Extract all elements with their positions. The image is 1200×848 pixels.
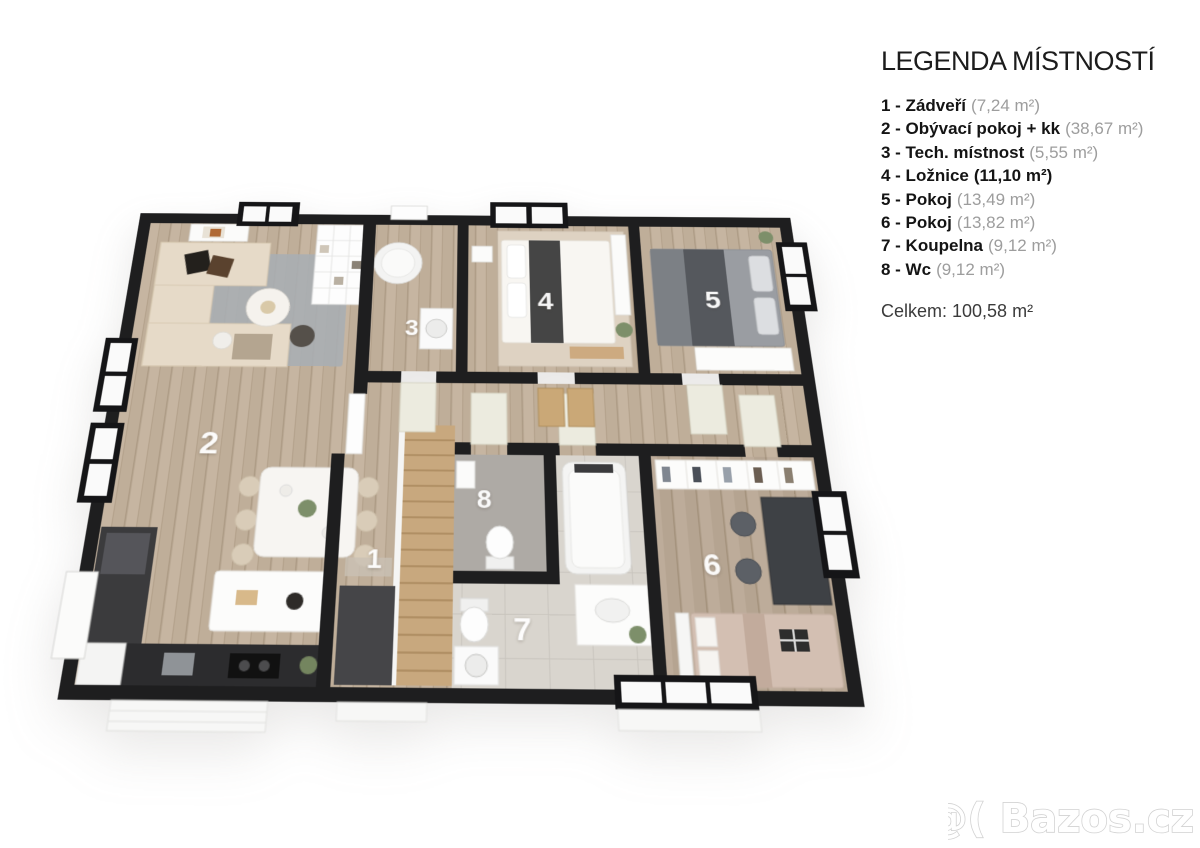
legend-item-6: 6 - Pokoj(13,82 m²) xyxy=(881,211,1191,234)
room-label-1: 1 xyxy=(366,544,383,575)
room-label-7: 7 xyxy=(513,610,532,647)
stairs xyxy=(389,425,455,686)
room-label-8: 8 xyxy=(477,485,492,514)
hall-closet xyxy=(334,586,396,686)
room-label-4: 4 xyxy=(537,287,554,315)
vent-room3 xyxy=(391,206,428,220)
room-label-3: 3 xyxy=(404,316,419,341)
washer-bath xyxy=(454,646,499,685)
bath-vanity xyxy=(575,584,652,645)
portal-pillar xyxy=(346,394,365,454)
legend-item-6-label: 6 - Pokoj xyxy=(881,213,952,232)
legend: LEGENDA MÍSTNOSTÍ 1 - Zádveří(7,24 m²) 2… xyxy=(881,46,1191,322)
bed-bench xyxy=(570,347,625,359)
legend-item-3: 3 - Tech. místnost(5,55 m²) xyxy=(881,141,1191,164)
legend-item-8-label: 8 - Wc xyxy=(881,260,931,279)
window-top-left xyxy=(236,202,300,227)
legend-title: LEGENDA MÍSTNOSTÍ xyxy=(881,46,1191,76)
floorplan-svg: 1 2 3 4 5 6 7 8 xyxy=(57,213,864,707)
legend-item-8-area: (9,12 m²) xyxy=(936,260,1005,279)
legend-item-1: 1 - Zádveří(7,24 m²) xyxy=(881,94,1191,117)
wardrobe-room5 xyxy=(695,347,795,370)
legend-item-2-area: (38,67 m²) xyxy=(1065,119,1143,138)
kitchen-island xyxy=(209,571,335,632)
legend-item-4-area: (11,10 m²) xyxy=(974,166,1052,185)
legend-item-5: 5 - Pokoj(13,49 m²) xyxy=(881,188,1191,211)
toilet-wc xyxy=(486,526,514,569)
entry-steps xyxy=(106,700,267,732)
wardrobe-room6 xyxy=(655,460,815,490)
bookshelf xyxy=(312,225,367,305)
legend-item-2-label: 2 - Obývací pokoj + kk xyxy=(881,119,1060,138)
wc-basin xyxy=(456,461,475,488)
legend-item-5-area: (13,49 m²) xyxy=(957,190,1035,209)
slider-door-bottom xyxy=(614,675,760,711)
legend-item-4: 4 - Ložnice(11,10 m²) xyxy=(881,164,1191,187)
bazos-watermark-text: @( Bazos.cz xyxy=(948,796,1194,842)
room-label-5: 5 xyxy=(703,286,722,314)
legend-item-1-area: (7,24 m²) xyxy=(971,96,1040,115)
washing-machine xyxy=(420,308,453,349)
toilet-bath xyxy=(460,598,488,642)
sideboard xyxy=(189,224,249,241)
legend-item-6-area: (13,82 m²) xyxy=(957,213,1035,232)
bazos-watermark: @( Bazos.cz xyxy=(948,790,1198,844)
window-room4 xyxy=(490,202,568,228)
legend-total: Celkem: 100,58 m² xyxy=(881,301,1191,322)
bed-room4 xyxy=(501,240,615,343)
porch-slab xyxy=(618,709,762,732)
legend-item-4-label: 4 - Ložnice xyxy=(881,166,969,185)
legend-item-7-area: (9,12 m²) xyxy=(988,236,1057,255)
legend-item-8: 8 - Wc(9,12 m²) xyxy=(881,258,1191,281)
legend-item-1-label: 1 - Zádveří xyxy=(881,96,966,115)
room-label-6: 6 xyxy=(702,547,723,582)
legend-item-5-label: 5 - Pokoj xyxy=(881,190,952,209)
hall-stoop xyxy=(336,702,427,722)
nightstand-room4 xyxy=(472,246,492,262)
legend-list: 1 - Zádveří(7,24 m²) 2 - Obývací pokoj +… xyxy=(881,94,1191,281)
legend-item-7: 7 - Koupelna(9,12 m²) xyxy=(881,234,1191,257)
floorplan-3d-render: 1 2 3 4 5 6 7 8 xyxy=(57,213,864,707)
legend-item-3-label: 3 - Tech. místnost xyxy=(881,143,1024,162)
legend-item-7-label: 7 - Koupelna xyxy=(881,236,983,255)
legend-item-3-area: (5,55 m²) xyxy=(1029,143,1098,162)
legend-item-2: 2 - Obývací pokoj + kk(38,67 m²) xyxy=(881,117,1191,140)
dining-table xyxy=(230,467,380,566)
bathtub xyxy=(562,462,632,574)
